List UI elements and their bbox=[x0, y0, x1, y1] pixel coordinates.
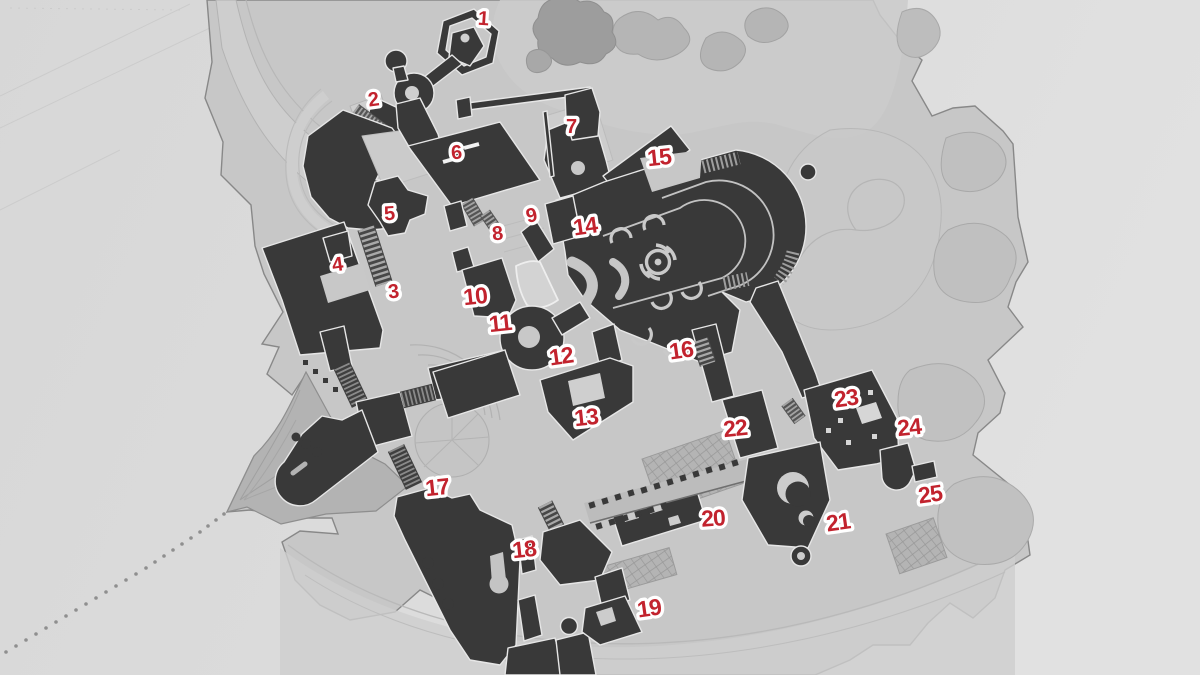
svg-text:10: 10 bbox=[462, 282, 488, 310]
svg-text:12: 12 bbox=[548, 341, 575, 370]
svg-text:19: 19 bbox=[636, 593, 663, 622]
svg-text:22: 22 bbox=[722, 414, 748, 442]
svg-text:14: 14 bbox=[572, 211, 600, 240]
svg-text:17: 17 bbox=[424, 473, 450, 501]
svg-text:16: 16 bbox=[668, 335, 695, 364]
svg-text:20: 20 bbox=[700, 504, 726, 532]
svg-text:24: 24 bbox=[896, 413, 923, 441]
svg-text:23: 23 bbox=[833, 383, 860, 412]
svg-text:13: 13 bbox=[573, 403, 599, 431]
svg-text:11: 11 bbox=[488, 309, 514, 337]
svg-text:15: 15 bbox=[646, 143, 673, 171]
svg-text:21: 21 bbox=[825, 507, 853, 536]
svg-text:18: 18 bbox=[511, 535, 538, 563]
svg-text:25: 25 bbox=[917, 479, 945, 508]
svg-text:7: 7 bbox=[566, 116, 577, 138]
